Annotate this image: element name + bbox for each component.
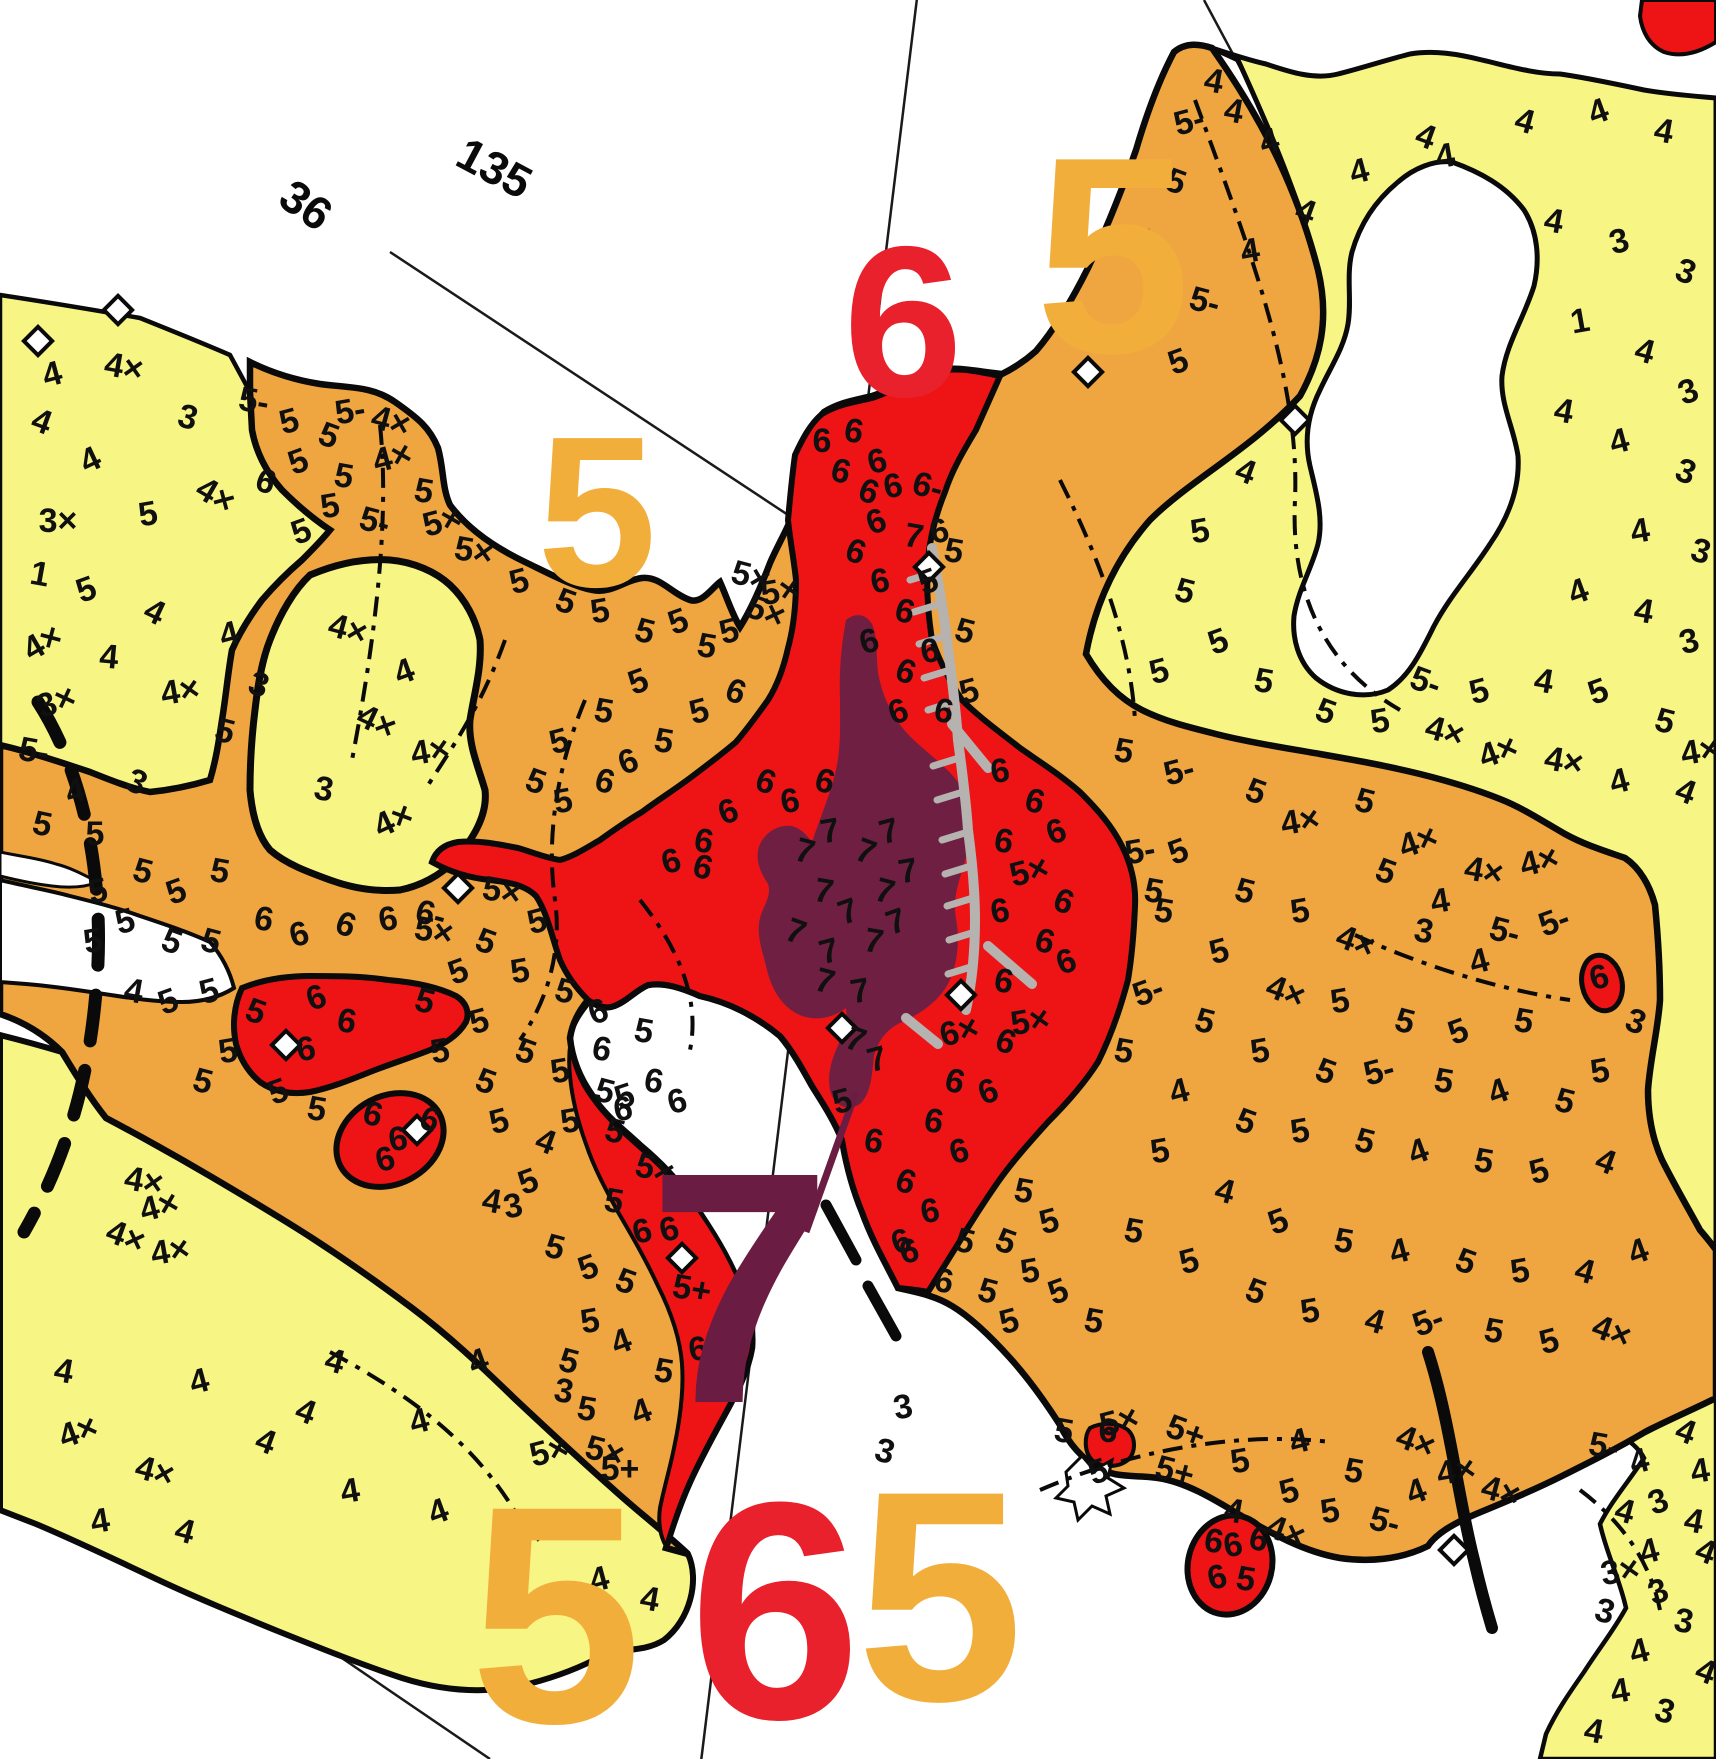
station-intensity-value: 6	[1099, 1412, 1118, 1450]
station-intensity-value: 6	[813, 422, 832, 460]
zone-label-5: 5	[1035, 100, 1191, 412]
station-intensity-value: 5	[86, 815, 105, 853]
zone-label-6: 6	[843, 201, 963, 442]
zone-label-7: 7	[648, 1103, 832, 1472]
station-intensity-value: 4×	[1462, 849, 1507, 893]
station-intensity-value: 4×	[148, 1229, 193, 1273]
seismic-intensity-map: 13536	[0, 0, 1716, 1759]
map-canvas: 13536	[0, 0, 1716, 1759]
station-intensity-value: 4×	[1278, 799, 1323, 843]
zone-label-6: 6	[689, 1437, 861, 1759]
station-intensity-value: 5×	[480, 869, 525, 913]
zone-label-5: 5	[537, 391, 657, 632]
station-intensity-value: 5×	[452, 529, 497, 573]
zone-label-5: 5	[470, 1441, 642, 1759]
station-intensity-value: 4×	[1542, 739, 1587, 783]
zone-label-5: 5	[857, 1428, 1024, 1759]
station-intensity-value: 4×	[102, 345, 147, 389]
station-intensity-value: 4×	[158, 669, 203, 713]
station-intensity-value: 5×	[1008, 999, 1053, 1043]
station-intensity-value: 4	[98, 637, 120, 677]
station-intensity-value: 5×	[412, 909, 457, 953]
station-intensity-value: 4×	[408, 729, 453, 773]
station-intensity-value: 4×	[1434, 1449, 1479, 1493]
station-intensity-value: 3×	[39, 502, 78, 540]
station-intensity-value: 3×	[1598, 1549, 1643, 1593]
station-intensity-value: 4×	[1678, 729, 1716, 773]
